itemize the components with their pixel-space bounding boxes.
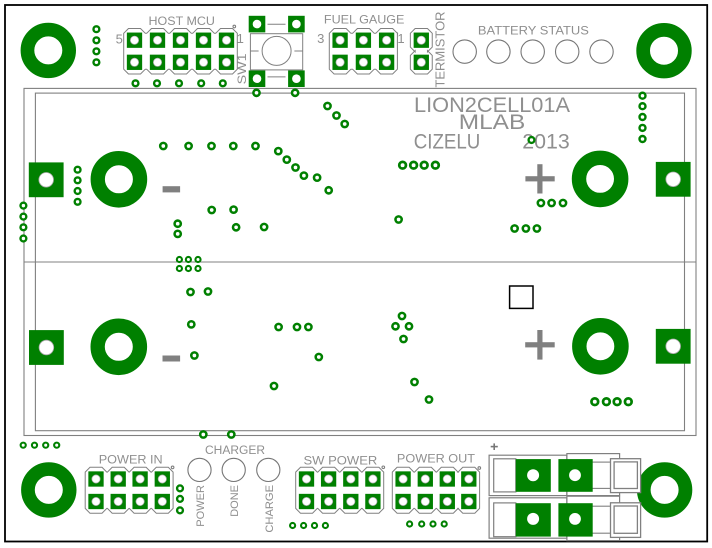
svg-text:SW1: SW1: [235, 53, 249, 84]
svg-text:CHARGE: CHARGE: [264, 485, 276, 533]
svg-text:3: 3: [317, 31, 324, 46]
svg-text:BATTERY STATUS: BATTERY STATUS: [478, 25, 589, 37]
svg-text:DONE: DONE: [229, 485, 241, 517]
svg-text:POWER OUT: POWER OUT: [397, 451, 476, 465]
svg-text:SW POWER: SW POWER: [304, 453, 378, 467]
svg-text:POWER IN: POWER IN: [99, 452, 163, 466]
svg-text:HOST MCU: HOST MCU: [149, 14, 215, 28]
svg-text:CHARGER: CHARGER: [205, 445, 265, 457]
svg-text:5: 5: [116, 32, 123, 47]
svg-text:TERMISTOR: TERMISTOR: [434, 12, 448, 88]
svg-text:1: 1: [397, 31, 404, 46]
svg-text:CIZELU: CIZELU: [414, 130, 481, 153]
svg-text:POWER: POWER: [195, 485, 207, 527]
svg-text:FUEL GAUGE: FUEL GAUGE: [324, 13, 405, 27]
